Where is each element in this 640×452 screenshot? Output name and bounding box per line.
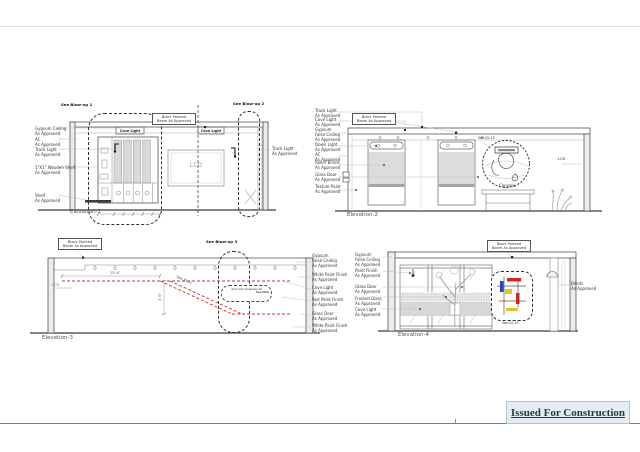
label-glass-door-el2: Glass Door As Approved [315, 172, 340, 182]
label-shelf: Shelf As Approved [35, 193, 60, 203]
label-frosted-glass: Frosted Glass As Approved [355, 296, 382, 306]
beam-label-el3: Black Painted Beam As Approved [58, 238, 102, 250]
elevation-4-title: Elevation-4 [398, 332, 429, 338]
beam-label-el4: Black Painted Beam As Approved [487, 240, 531, 252]
lcd-text-el1: LCD [168, 162, 224, 169]
note-see-note: See Note [224, 291, 269, 295]
label-wooden-shelf: 1"X1" Wooden Shelf As Approved [35, 165, 75, 175]
label-cove-light-el4: Cove Light As Approved [355, 307, 380, 317]
blowup-2-capsule [238, 111, 260, 217]
note-bubble: don't why bookcase dtl See Note [221, 285, 272, 302]
label-white-paint-2: White Paint Finish As Approved [312, 323, 347, 333]
label-track-light-right: Track Light As Approved [272, 146, 297, 156]
label-gypsum-false-ceiling-el3: Gypsum False Ceiling As Approved [312, 253, 337, 268]
label-gypsum-false-ceiling-el4: Gypsum False Ceiling As Approved [355, 252, 380, 267]
see-blowup-1-label: See Blow-up 1 [61, 103, 92, 108]
cove-light-label-b: Cove Light [199, 129, 223, 133]
titleblock-tick-1 [455, 419, 456, 423]
label-glass-door-el4: Glass Door As Approved [355, 284, 380, 294]
label-cove-light-el2: Cove Light As Approved [315, 117, 340, 127]
lcd-text-el2: LCD [558, 157, 565, 161]
label-texture-paint: Texture Paint As Approved [315, 184, 341, 194]
see-blowup-3-label: See Blow-up 3 [206, 240, 237, 245]
label-cove-light-el3: Cove Light As Approved [312, 285, 337, 295]
label-white-paint-1: White Paint Finish As Approved [312, 272, 347, 282]
elevation-2-title: Elevation-2 [347, 212, 378, 218]
dim-13-6: 13'-6" [110, 271, 120, 275]
drawing-sheet: See Blow-up 1 See Blow-up 2 Black Painte… [0, 0, 640, 452]
label-roller-blinds: Roller Blinds As Approved [315, 160, 340, 170]
label-blinds: Blinds As Approved [571, 281, 596, 291]
construction-stamp-box: Issued For Construction [506, 401, 630, 424]
construction-stamp: Issued For Construction [511, 407, 625, 419]
elevation-3-linework [30, 235, 342, 343]
see-blowup-2-label: See Blow-up 2 [233, 102, 264, 107]
label-track-light-el1: Track Light As Approved [35, 147, 60, 157]
label-ac-el1: AC As Approved [35, 137, 60, 147]
sheet-top-edge-line [0, 26, 640, 27]
beam-label-el1: Black Painted Beam As Approved [152, 113, 196, 125]
console-label: Console [493, 183, 521, 188]
label-paint-finish: Paint Finish As Approved [355, 268, 380, 278]
lcd-text-el3: LCD [52, 283, 59, 287]
see-id-label-el4: See ID-13 [502, 321, 519, 325]
label-glass-door-el3: Glass Door As Approved [312, 311, 337, 321]
cove-light-label-a: Cove Light [117, 129, 143, 133]
artwork-bubble [491, 271, 533, 321]
beam-label-el2: Black Painted Beam As Approved [352, 113, 396, 125]
see-id-label-el2: See ID-13 [478, 136, 495, 140]
label-down-light: Down Light As Approved [315, 142, 340, 152]
mondrian-artwork [493, 273, 531, 319]
elevation-3-title: Elevation-3 [42, 335, 73, 341]
label-gypsum-ceiling: Gypsum Ceiling As Approved [35, 126, 66, 136]
elevation-1-title: Elevation-1 [70, 209, 101, 215]
dim-3-6: 3'-6" [158, 293, 162, 301]
label-red-paint: Red Paint Finish As Approved [312, 297, 343, 307]
label-gypsum-false-ceiling-el2: Gypsum False Ceiling As Approved [315, 127, 340, 142]
elevation-4-linework [350, 235, 590, 338]
